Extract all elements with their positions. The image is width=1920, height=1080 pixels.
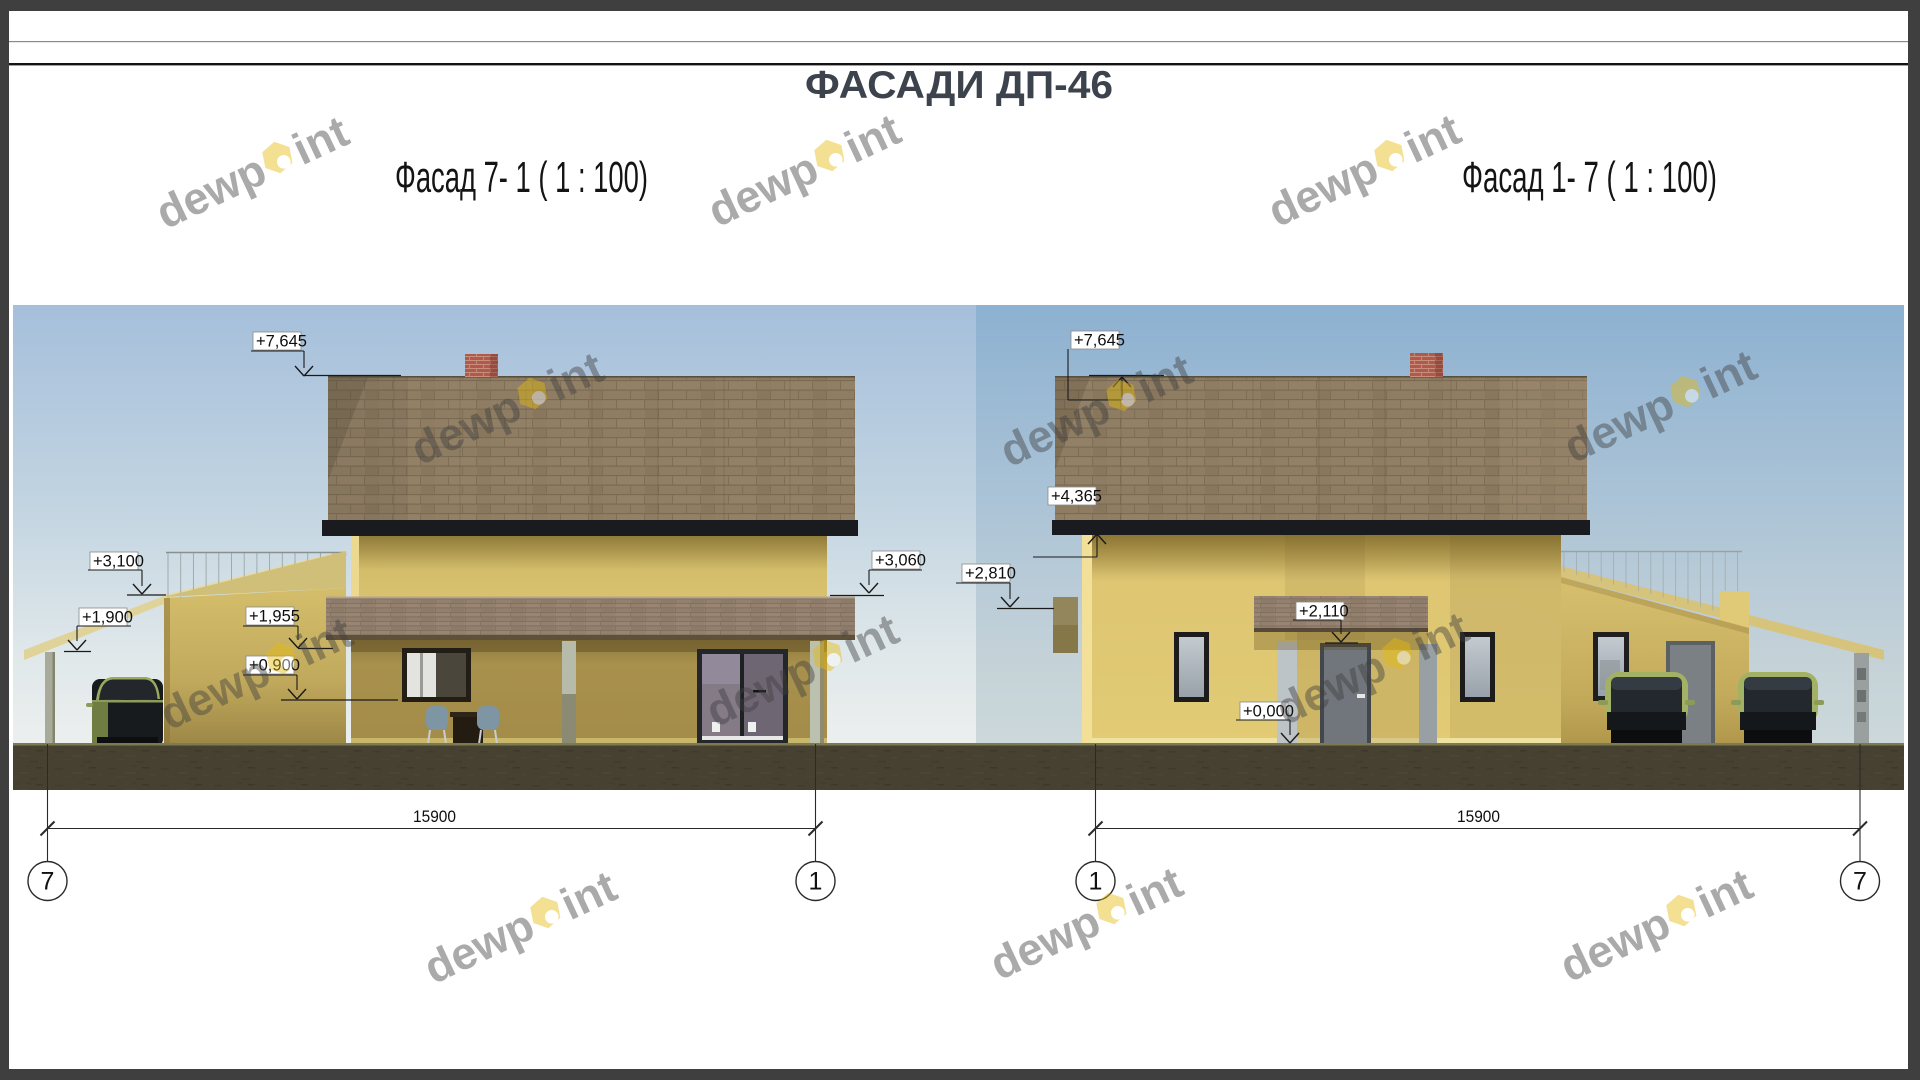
svg-text:+4,365: +4,365	[1051, 488, 1102, 506]
svg-text:+2,110: +2,110	[1299, 603, 1349, 621]
svg-text:+2,810: +2,810	[965, 565, 1016, 583]
svg-text:15900: 15900	[1457, 807, 1500, 826]
svg-text:+3,100: +3,100	[93, 553, 144, 571]
svg-text:7: 7	[1853, 868, 1867, 896]
svg-text:+1,900: +1,900	[82, 609, 133, 627]
svg-text:ФАСАДИ ДП-46: ФАСАДИ ДП-46	[805, 64, 1113, 107]
svg-text:1: 1	[809, 868, 823, 896]
svg-text:15900: 15900	[413, 807, 456, 826]
svg-text:+1,955: +1,955	[249, 608, 300, 626]
svg-text:7: 7	[41, 868, 55, 896]
svg-text:+3,060: +3,060	[875, 552, 926, 570]
svg-text:1: 1	[1089, 868, 1103, 896]
svg-text:+7,645: +7,645	[256, 333, 307, 351]
svg-text:Фасад 1- 7 ( 1 : 100): Фасад 1- 7 ( 1 : 100)	[1462, 153, 1717, 202]
svg-text:Фасад 7- 1 ( 1 : 100): Фасад 7- 1 ( 1 : 100)	[395, 153, 648, 202]
svg-text:+7,645: +7,645	[1074, 332, 1125, 350]
